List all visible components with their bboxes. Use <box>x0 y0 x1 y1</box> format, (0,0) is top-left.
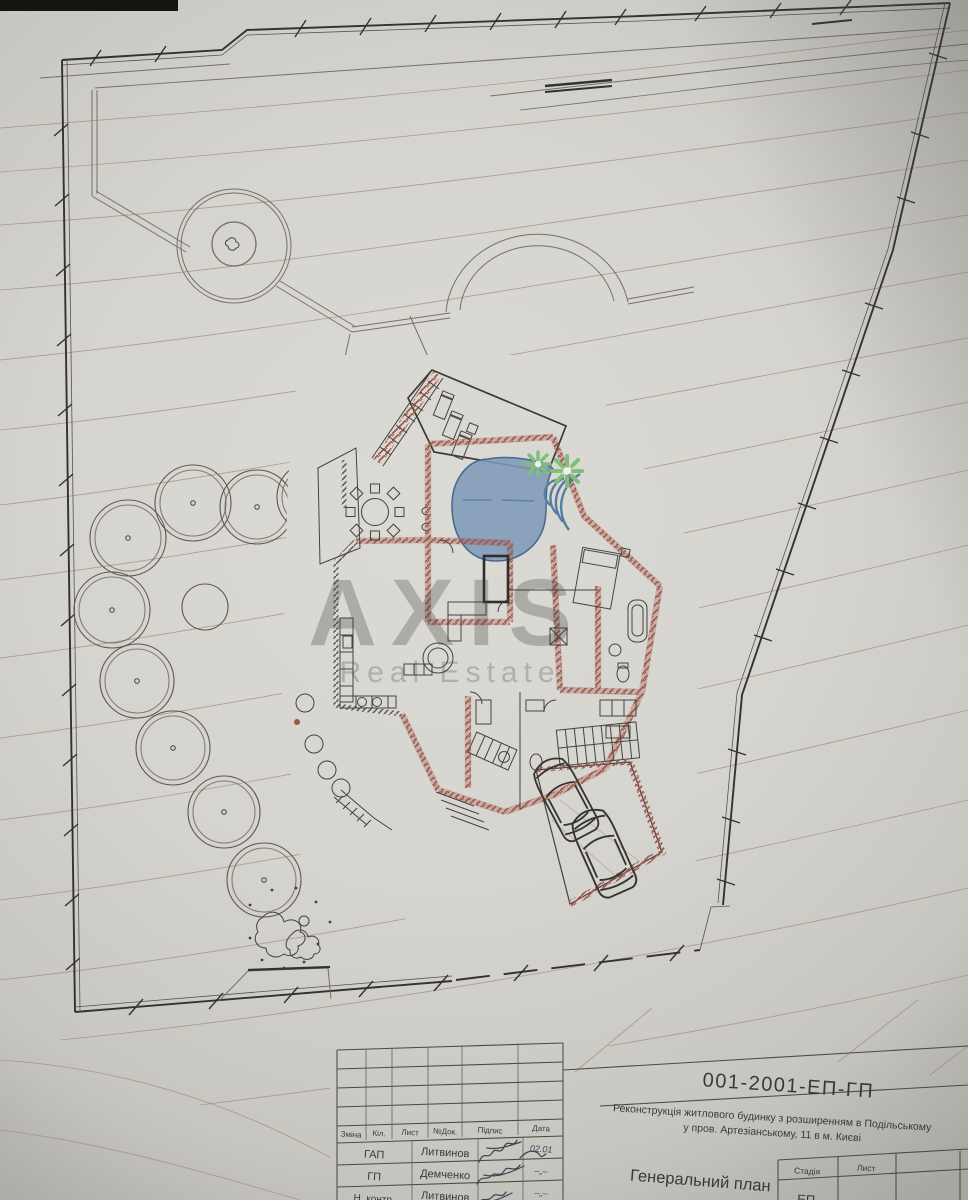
col-header: Зміна <box>340 1129 362 1139</box>
sheet-label: Лист <box>857 1163 876 1174</box>
stage-label: Стадія <box>794 1165 821 1176</box>
name-cell: Литвинов <box>421 1190 470 1200</box>
plant-icon <box>526 452 550 476</box>
watermark: AXIS Real Estate <box>308 560 586 689</box>
role-cell: Н. контр. <box>353 1193 395 1200</box>
stage-value: ЕП <box>797 1192 816 1200</box>
col-header: Дата <box>532 1124 551 1134</box>
photo-edge-dark-strip <box>0 0 178 11</box>
col-header: Лист <box>401 1128 419 1138</box>
date-cell: 02.01 <box>530 1143 553 1154</box>
role-cell: ГП <box>367 1171 382 1184</box>
watermark-line2: Real Estate <box>339 656 560 689</box>
col-header: Кіл. <box>372 1129 386 1139</box>
col-header: Підпис <box>477 1125 502 1135</box>
general-plan-drawing: Зміна Кіл. Лист №Док. Підпис Дата ГАП Ли… <box>0 0 968 1200</box>
date-cell: –„– <box>533 1188 549 1199</box>
role-cell: ГАП <box>364 1148 385 1161</box>
photo-of-general-plan: Зміна Кіл. Лист №Док. Підпис Дата ГАП Ли… <box>0 0 968 1200</box>
name-cell: Литвинов <box>421 1146 470 1161</box>
date-cell: –„– <box>533 1166 549 1177</box>
col-header: №Док. <box>433 1126 458 1136</box>
watermark-line1: AXIS <box>308 560 586 666</box>
plant-icon <box>552 456 582 486</box>
